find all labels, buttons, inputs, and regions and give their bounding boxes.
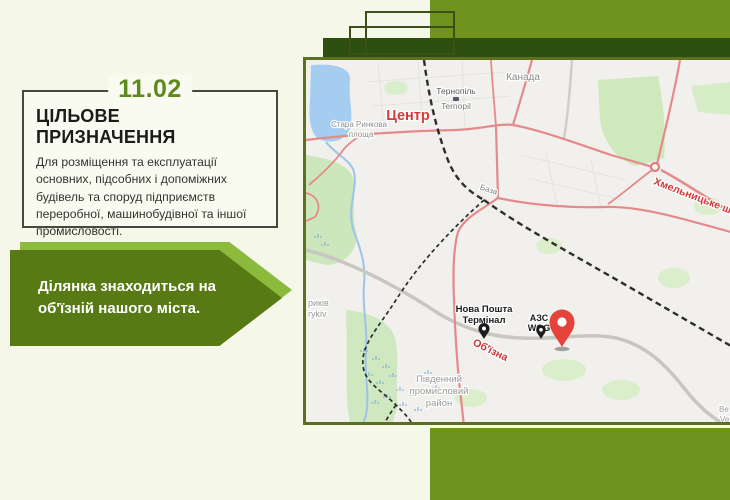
location-marker[interactable]	[550, 310, 575, 352]
label-base: База	[479, 183, 499, 197]
map-svg: Канада Центр Тернопіль Ternopil Стара Ри…	[306, 60, 730, 425]
nova-poshta-pin[interactable]	[479, 323, 490, 339]
map-canvas[interactable]: Канада Центр Тернопіль Ternopil Стара Ри…	[303, 57, 730, 425]
park	[598, 76, 665, 166]
label-highway: Хмельницьке шосе	[652, 176, 730, 223]
label-district: Канада	[506, 72, 540, 83]
callout-text: Ділянка знаходиться на об'їзній нашого м…	[10, 276, 238, 320]
label-edge-ua: Ве	[719, 405, 729, 414]
label-industrial-1: Південний	[416, 374, 462, 385]
label-industrial-3: район	[426, 398, 452, 409]
decor-rectangle-top-right	[430, 0, 730, 40]
label-industrial-2: промисловий	[410, 386, 469, 397]
roundabout	[651, 163, 659, 171]
label-gas-1: АЗС	[530, 313, 549, 323]
decor-rectangle-bottom-right	[430, 428, 730, 500]
lake	[309, 65, 351, 142]
label-bypass: Об'їзна	[471, 337, 510, 364]
info-card: 11.02 ЦІЛЬОВЕ ПРИЗНАЧЕННЯ Для розміщення…	[22, 90, 278, 228]
card-title: ЦІЛЬОВЕ ПРИЗНАЧЕННЯ	[36, 106, 264, 148]
label-village-en: rykiv	[308, 309, 327, 319]
slide: 11.02 ЦІЛЬОВЕ ПРИЗНАЧЕННЯ Для розміщення…	[0, 0, 730, 500]
callout-arrow: Ділянка знаходиться на об'їзній нашого м…	[0, 238, 300, 350]
label-edge-en: Ve	[720, 415, 730, 424]
label-station-en: Ternopil	[441, 101, 471, 111]
label-center: Центр	[386, 108, 430, 124]
label-nova-poshta-1: Нова Пошта	[456, 304, 514, 315]
label-station-ua: Тернопіль	[436, 86, 476, 96]
decor-outline-rect-b	[349, 26, 455, 55]
label-square-2: площа	[349, 130, 374, 139]
slide-number: 11.02	[108, 75, 192, 104]
card-description: Для розміщення та експлуатації основних,…	[36, 154, 264, 241]
label-village-ua: риків	[308, 298, 329, 308]
label-square-1: Стара Ринкова	[331, 120, 387, 129]
